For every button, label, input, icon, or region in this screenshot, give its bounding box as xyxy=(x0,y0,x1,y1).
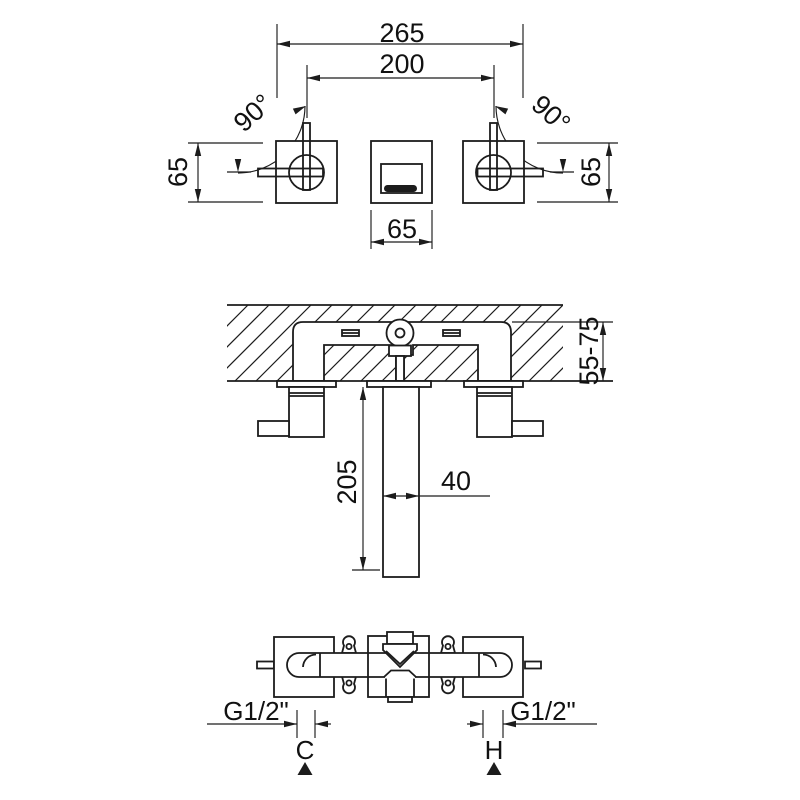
plan-view: G1/2" G1/2" C H xyxy=(207,632,597,775)
dim-thread-right: G1/2" xyxy=(467,696,597,738)
spout-outlet-slot xyxy=(384,185,417,192)
left-handle-section xyxy=(258,387,324,437)
right-handle-section xyxy=(477,387,543,437)
dim-spout-width-label: 40 xyxy=(441,466,471,496)
faucet-installation-drawing: 265 200 90° 90° xyxy=(0,0,800,800)
spout-tube xyxy=(383,387,419,577)
angle-right-label: 90° xyxy=(526,89,576,139)
spout-tip-plan xyxy=(387,632,413,644)
left-stem-plan xyxy=(257,662,274,669)
angle-left-label: 90° xyxy=(228,88,278,138)
dim-height-right-label: 65 xyxy=(576,157,606,187)
section-view: 55-75 205 40 xyxy=(151,305,626,577)
dim-spout-drop-label: 205 xyxy=(332,459,362,504)
cold-indicator: C xyxy=(296,735,315,775)
hot-indicator: H xyxy=(485,735,504,775)
dim-height-right: 65 xyxy=(537,143,618,202)
thread-right-label: G1/2" xyxy=(510,696,576,726)
spout-front xyxy=(371,141,432,203)
dim-plate-width: 65 xyxy=(371,210,432,249)
front-view: 265 200 90° 90° xyxy=(163,18,618,249)
dim-height-left-label: 65 xyxy=(163,157,193,187)
dim-plate-width-label: 65 xyxy=(387,214,417,244)
hot-label: H xyxy=(485,735,504,765)
dim-handle-centers: 200 xyxy=(307,49,494,118)
dim-wall-depth-label: 55-75 xyxy=(574,316,604,385)
thread-left-label: G1/2" xyxy=(223,696,289,726)
center-valve xyxy=(387,320,414,347)
dim-handle-centers-label: 200 xyxy=(379,49,424,79)
dim-thread-left: G1/2" xyxy=(207,696,331,738)
left-handle-front xyxy=(258,123,337,203)
right-stem-plan xyxy=(525,662,541,669)
dim-overall-width-label: 265 xyxy=(379,18,424,48)
cold-label: C xyxy=(296,735,315,765)
dim-spout-drop: 205 xyxy=(332,387,380,570)
